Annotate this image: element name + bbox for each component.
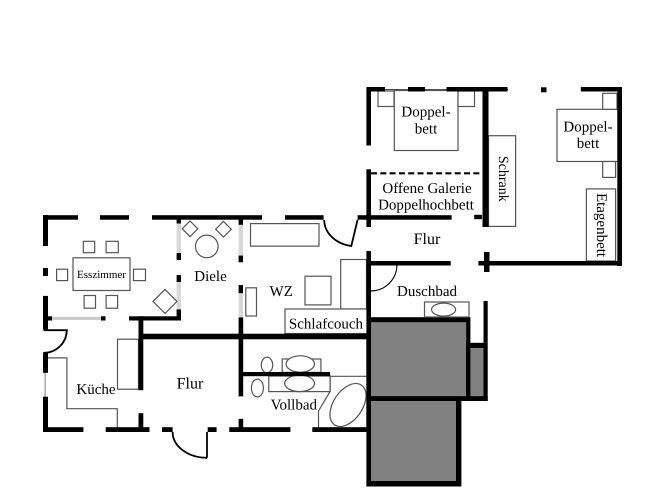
svg-text:Küche: Küche xyxy=(76,382,115,398)
svg-text:bett: bett xyxy=(577,136,600,152)
svg-text:Vollbad: Vollbad xyxy=(271,398,318,414)
svg-text:Flur: Flur xyxy=(177,376,204,393)
svg-text:Esszimmer: Esszimmer xyxy=(77,269,126,281)
svg-text:Offene Galerie: Offene Galerie xyxy=(382,181,472,197)
svg-text:WZ: WZ xyxy=(270,284,293,300)
svg-text:Schrank: Schrank xyxy=(495,156,510,202)
svg-text:Doppelhochbett: Doppelhochbett xyxy=(378,197,475,213)
svg-text:Doppel-: Doppel- xyxy=(401,105,450,121)
svg-text:bett: bett xyxy=(415,122,438,138)
svg-text:Etagenbett: Etagenbett xyxy=(593,193,609,258)
svg-text:Flur: Flur xyxy=(414,231,441,248)
svg-text:Schlafcouch: Schlafcouch xyxy=(289,317,364,333)
svg-text:Diele: Diele xyxy=(194,269,227,285)
svg-text:Doppel-: Doppel- xyxy=(563,120,612,136)
svg-text:Duschbad: Duschbad xyxy=(397,284,457,300)
